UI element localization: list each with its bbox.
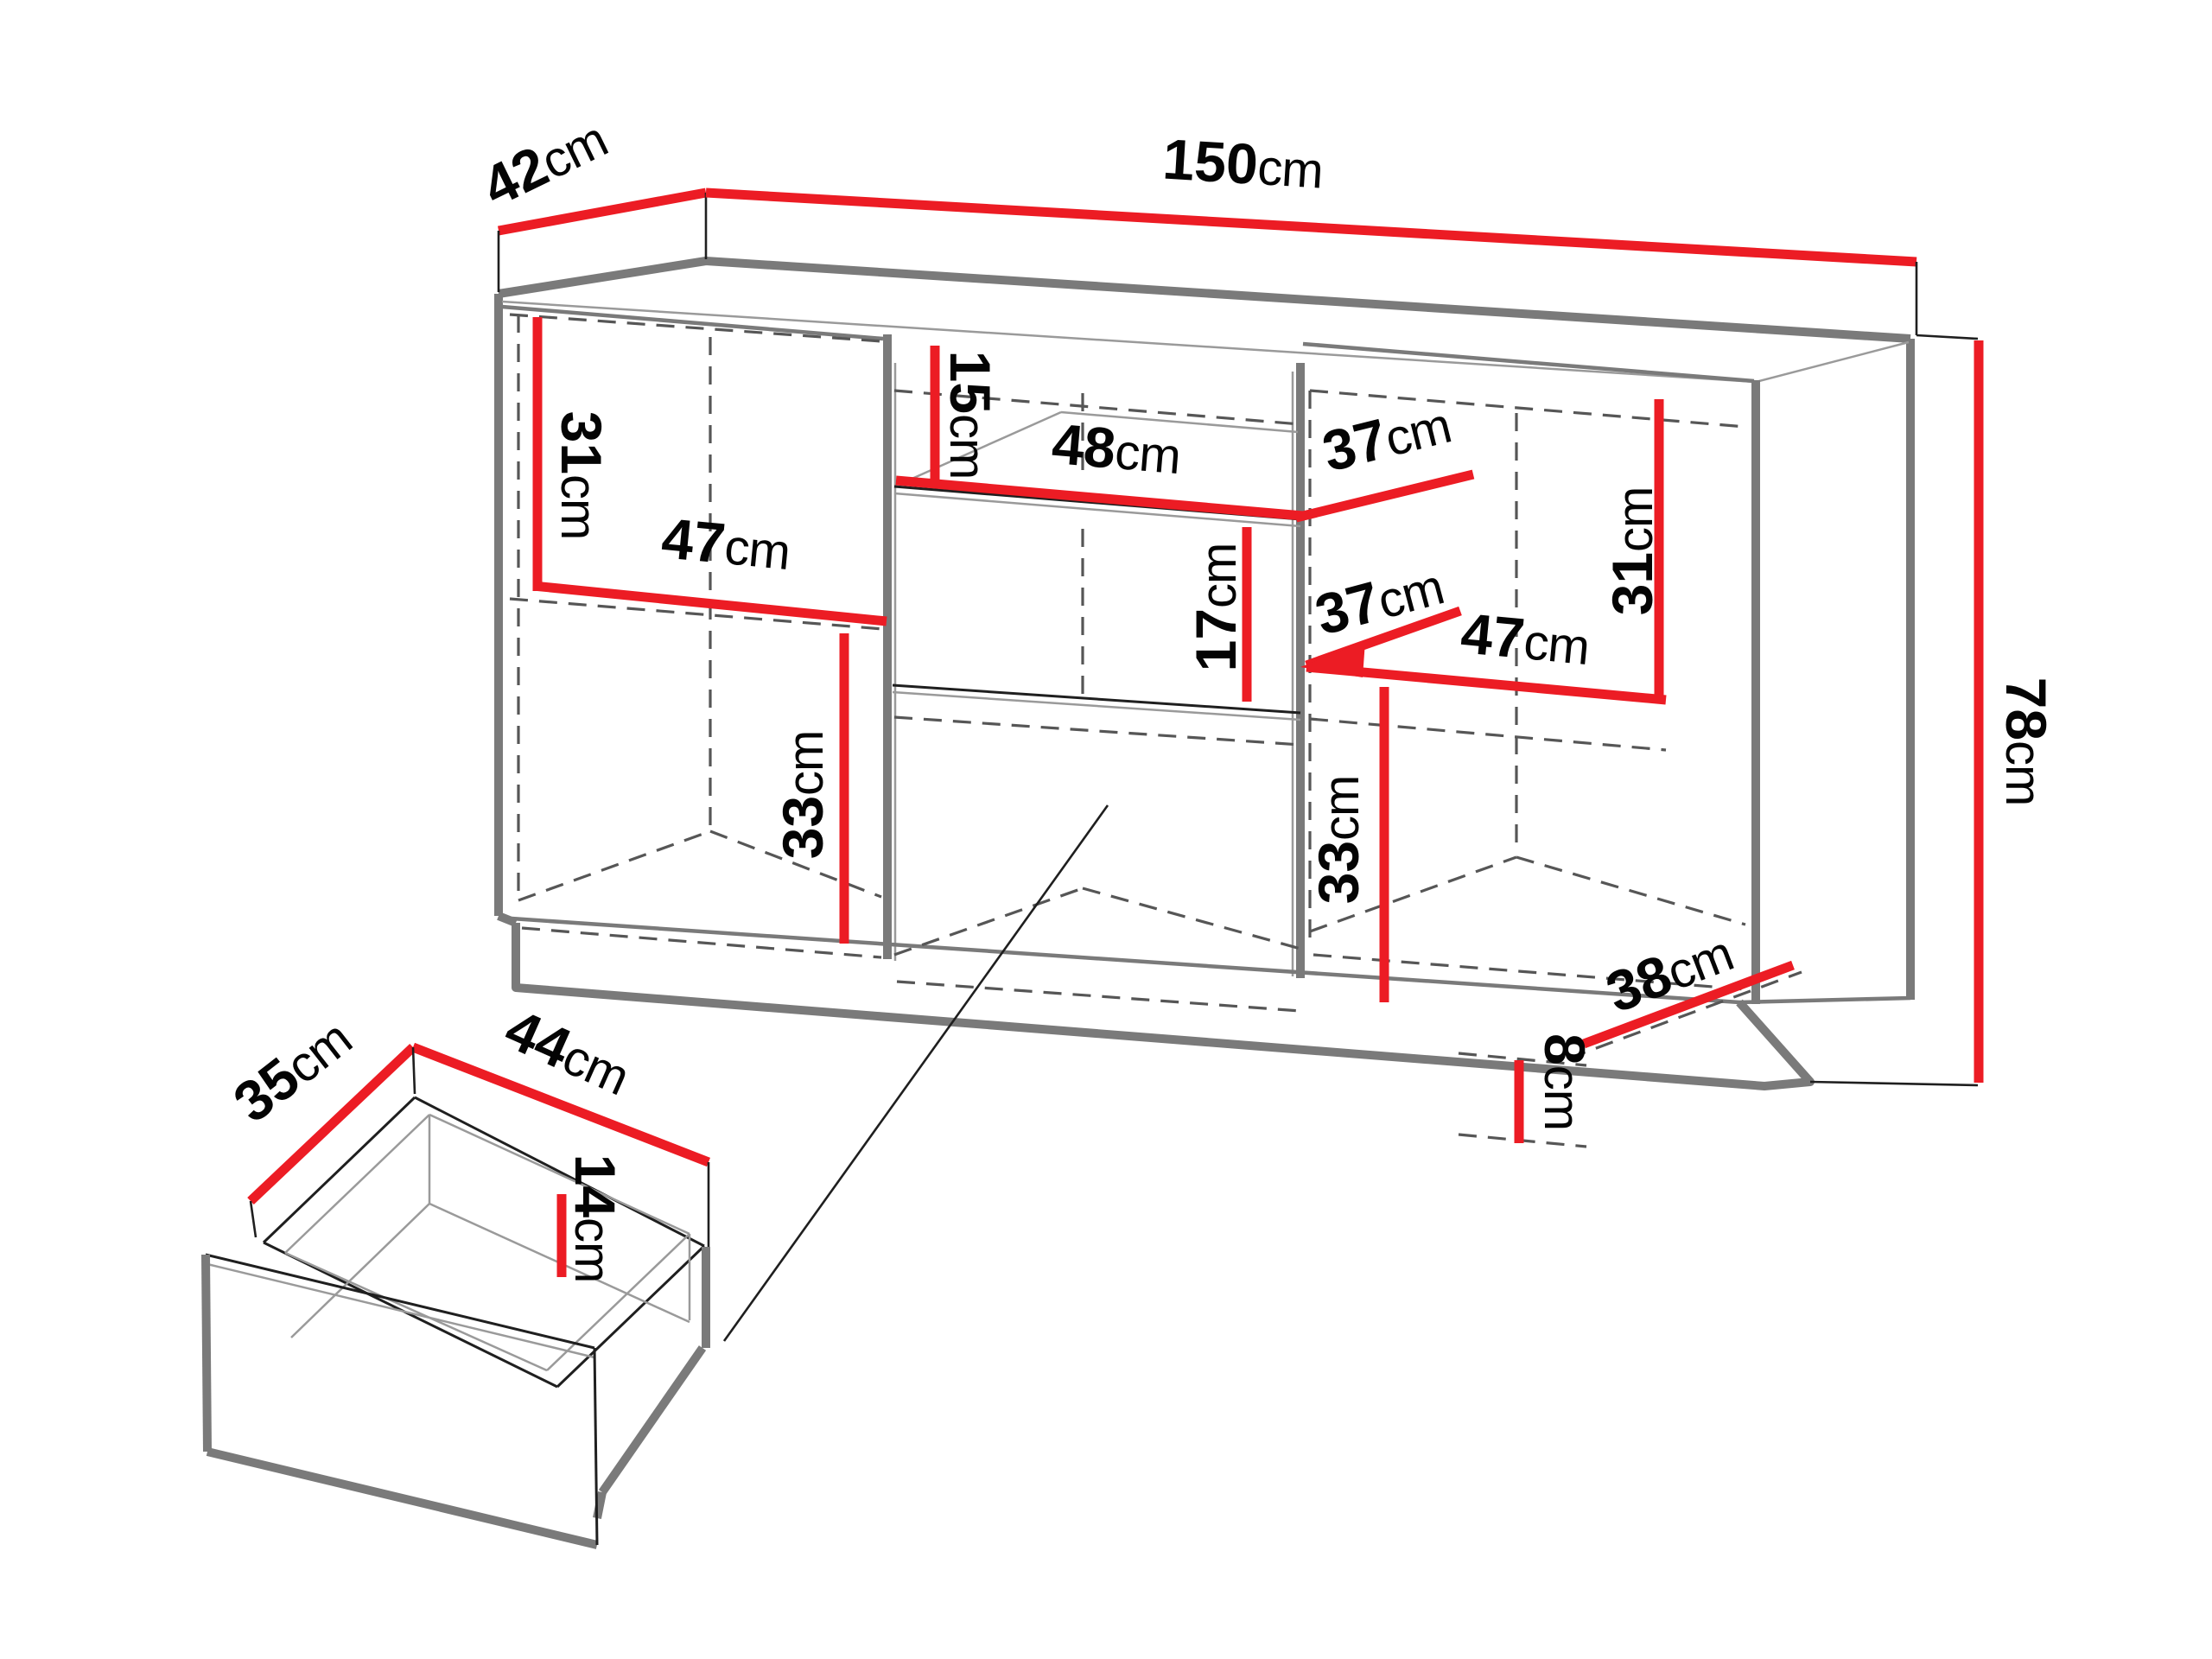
mid-floor-a [894,888,1083,955]
drawer-detail [206,1097,706,1545]
dim-15-unit: cm [939,414,995,479]
dim-37A-unit: cm [1379,397,1456,467]
dim-label-15: 15cm [938,351,1002,480]
cabinet-top-edge [499,261,1910,339]
dimension-left-upper-height-31cm: 31cm [537,317,613,591]
mid-floor-b [1083,888,1300,949]
side-bottom-edge [1739,998,1910,1002]
dimension-left-lower-height-33cm: 33cm [771,633,844,944]
drawer-panel-top [206,1255,594,1348]
drawer-panel-left [206,1255,207,1452]
dim-17-value: 17 [1184,608,1248,671]
drawer-front-top [264,1243,557,1387]
dim-tick-44a [413,1047,415,1094]
dimension-plinth-height-8cm: 8cm [1519,1033,1597,1143]
dim-15-value: 15 [938,351,1002,414]
mid-dash-shelf2 [894,717,1300,745]
dim-150-value: 150 [1161,126,1260,196]
dimension-drawer-height-14cm: 14cm [562,1154,627,1283]
dim-label-150: 150cm [1161,126,1325,200]
dim-150-unit: cm [1256,139,1325,199]
dim-line-37A [1296,474,1473,518]
right-shelf-dash [1310,719,1666,750]
dim-8-value: 8 [1533,1033,1597,1065]
drawer-inner-front [285,1253,547,1370]
dim-48-unit: cm [1113,423,1183,485]
dim-label-78: 78cm [1994,677,2058,806]
dim-label-33R: 33cm [1306,776,1370,905]
dim-label-14: 14cm [563,1154,627,1283]
dimension-drawer-depth-35cm: 35cm [221,1005,413,1237]
dim-48-value: 48 [1050,411,1118,480]
dim-line-47R [1306,667,1666,700]
dimension-height-78cm: 78cm [1810,335,2058,1085]
dimension-right-upper-height-31cm: 31cm [1600,399,1664,702]
dim-17-unit: cm [1191,543,1247,608]
dim-31L-value: 31 [550,411,613,474]
drawer-panel-bottom [207,1452,597,1545]
dim-33L-value: 33 [771,796,835,859]
shelf2-front [893,685,1300,713]
dim-label-33L: 33cm [771,731,835,860]
dim-label-31L: 31cm [550,411,613,540]
dim-label-47L: 47cm [659,505,793,582]
dim-31R-value: 31 [1600,552,1664,615]
dimension-middle-height-17cm: 17cm [1184,527,1248,702]
top-right-arris [1756,342,1909,382]
dim-78-value: 78 [1994,677,2058,741]
drawer-side-bottom [602,1348,702,1492]
drawer-pointer-line [724,805,1108,1341]
dim-line-150 [706,193,1916,262]
dimension-niche-height-15cm: 15cm [935,346,1002,486]
diagram-canvas: 42cm 150cm 78cm 31cm 47cm 15cm 48cm [0,0,2212,1659]
dim-33L-unit: cm [778,731,834,796]
drawer-inner-left [285,1115,429,1253]
left-door-dash-top [510,315,881,341]
dim-tick-78b [1810,1082,1978,1085]
dim-label-47R: 47cm [1459,601,1592,677]
dim-78-unit: cm [1995,741,2051,805]
right-floor-b [1516,857,1745,925]
dim-label-37B: 37cm [1309,552,1450,647]
body-bottom-edge [512,918,1739,1002]
dim-47R-value: 47 [1459,601,1528,671]
dim-31L-unit: cm [550,474,607,539]
dim-33R-unit: cm [1313,776,1370,841]
dim-14-value: 14 [563,1154,627,1218]
dim-label-17: 17cm [1184,543,1248,672]
dimension-right-shelf-depth-37cm: 37cm [1300,552,1460,677]
left-floor-a [518,831,710,900]
dim-8-unit: cm [1534,1065,1590,1130]
dim-label-8: 8cm [1533,1033,1597,1130]
dim-tick-78a [1916,335,1978,339]
dim-label-37A: 37cm [1316,391,1456,484]
dim-47L-value: 47 [659,505,728,575]
mid-bottom-dash [897,982,1300,1011]
right-door-top-edge [1303,344,1754,381]
drawer-floor-left [291,1204,429,1338]
shelf2-front2 [893,692,1300,720]
drawer-panel-top2 [207,1264,594,1357]
dimension-diagram: 42cm 150cm 78cm 31cm 47cm 15cm 48cm [0,0,2212,1659]
dim-label-31R: 31cm [1600,487,1664,616]
dim-47L-unit: cm [722,518,792,581]
dim-47R-unit: cm [1522,613,1592,676]
dim-14-unit: cm [564,1217,620,1282]
dim-31R-unit: cm [1607,487,1663,552]
dimension-niche-depth-37cm: 37cm [1296,391,1473,518]
dim-33R-value: 33 [1306,841,1370,904]
dim-label-48: 48cm [1050,411,1183,486]
dim-label-42: 42cm [473,105,616,219]
dim-tick-35 [251,1201,256,1237]
